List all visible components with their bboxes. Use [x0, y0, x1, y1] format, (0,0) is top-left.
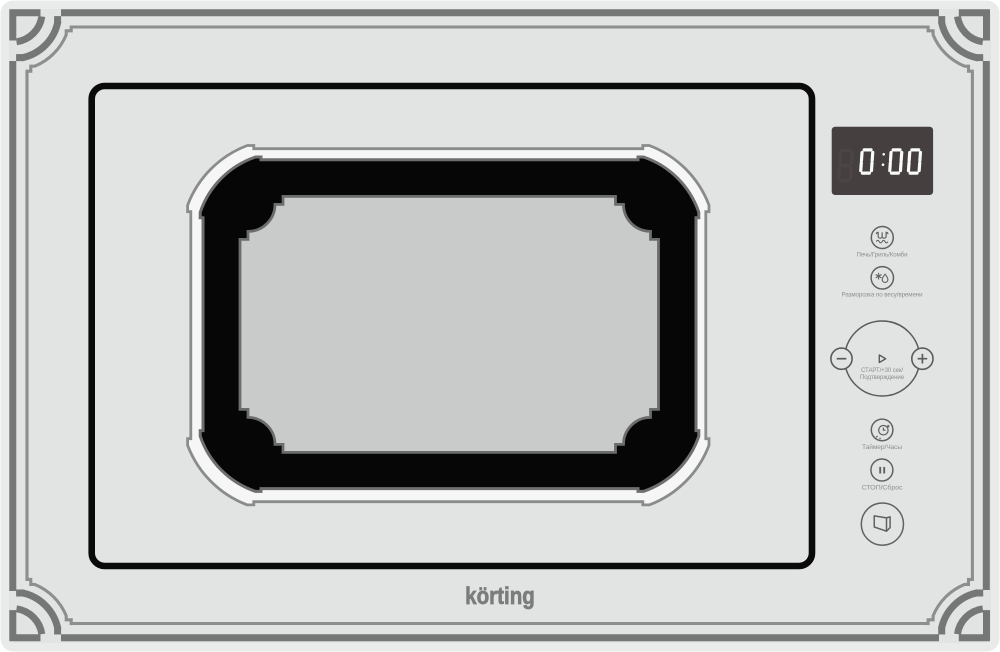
svg-text:Печь/Гриль/Комби: Печь/Гриль/Комби [857, 251, 908, 259]
svg-text:СТОП/Сброс: СТОП/Сброс [862, 484, 904, 492]
svg-text:СТАРТ/+30 сек/: СТАРТ/+30 сек/ [861, 367, 903, 374]
svg-text:körting: körting [465, 582, 535, 609]
svg-text:Разморозка по весу/времени: Разморозка по весу/времени [842, 292, 923, 299]
svg-text:Таймер/Часы: Таймер/Часы [862, 443, 902, 451]
svg-text:Подтверждение: Подтверждение [860, 374, 904, 381]
